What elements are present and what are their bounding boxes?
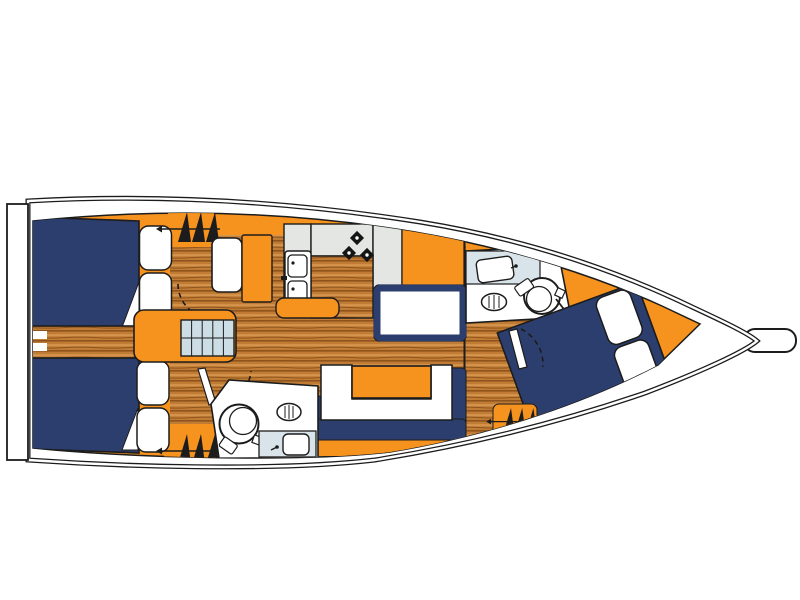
nav-seat bbox=[374, 285, 466, 341]
faucet-dot bbox=[291, 287, 294, 290]
pillow bbox=[137, 361, 169, 405]
floor-plan-page bbox=[0, 0, 800, 600]
settee-edge-bottom bbox=[315, 419, 466, 440]
companionway-stairs bbox=[134, 310, 236, 362]
aft-head bbox=[211, 380, 318, 458]
tall-cabinet bbox=[242, 235, 272, 302]
pillow bbox=[140, 226, 172, 270]
faucet-dot bbox=[291, 261, 294, 264]
salon-table bbox=[352, 366, 431, 398]
corridor-floor bbox=[25, 326, 139, 358]
pillow bbox=[137, 408, 169, 452]
salon-settee bbox=[314, 365, 466, 440]
engine-corridor bbox=[25, 326, 139, 358]
faucet bbox=[281, 276, 287, 280]
head-sink-basin bbox=[476, 256, 515, 284]
yacht-floor-plan bbox=[0, 0, 800, 600]
aft-berth-port bbox=[30, 217, 139, 331]
galley-cabinet bbox=[276, 298, 339, 318]
galley-counter-top bbox=[311, 224, 373, 256]
interior-contents bbox=[25, 206, 673, 464]
galley-counter-right bbox=[373, 224, 402, 288]
head-sink-basin bbox=[283, 434, 309, 455]
aft-berth-starboard bbox=[30, 345, 139, 453]
nav-seat-cushion bbox=[377, 288, 463, 338]
transom bbox=[7, 204, 28, 460]
cabin-locker-door bbox=[212, 238, 242, 292]
